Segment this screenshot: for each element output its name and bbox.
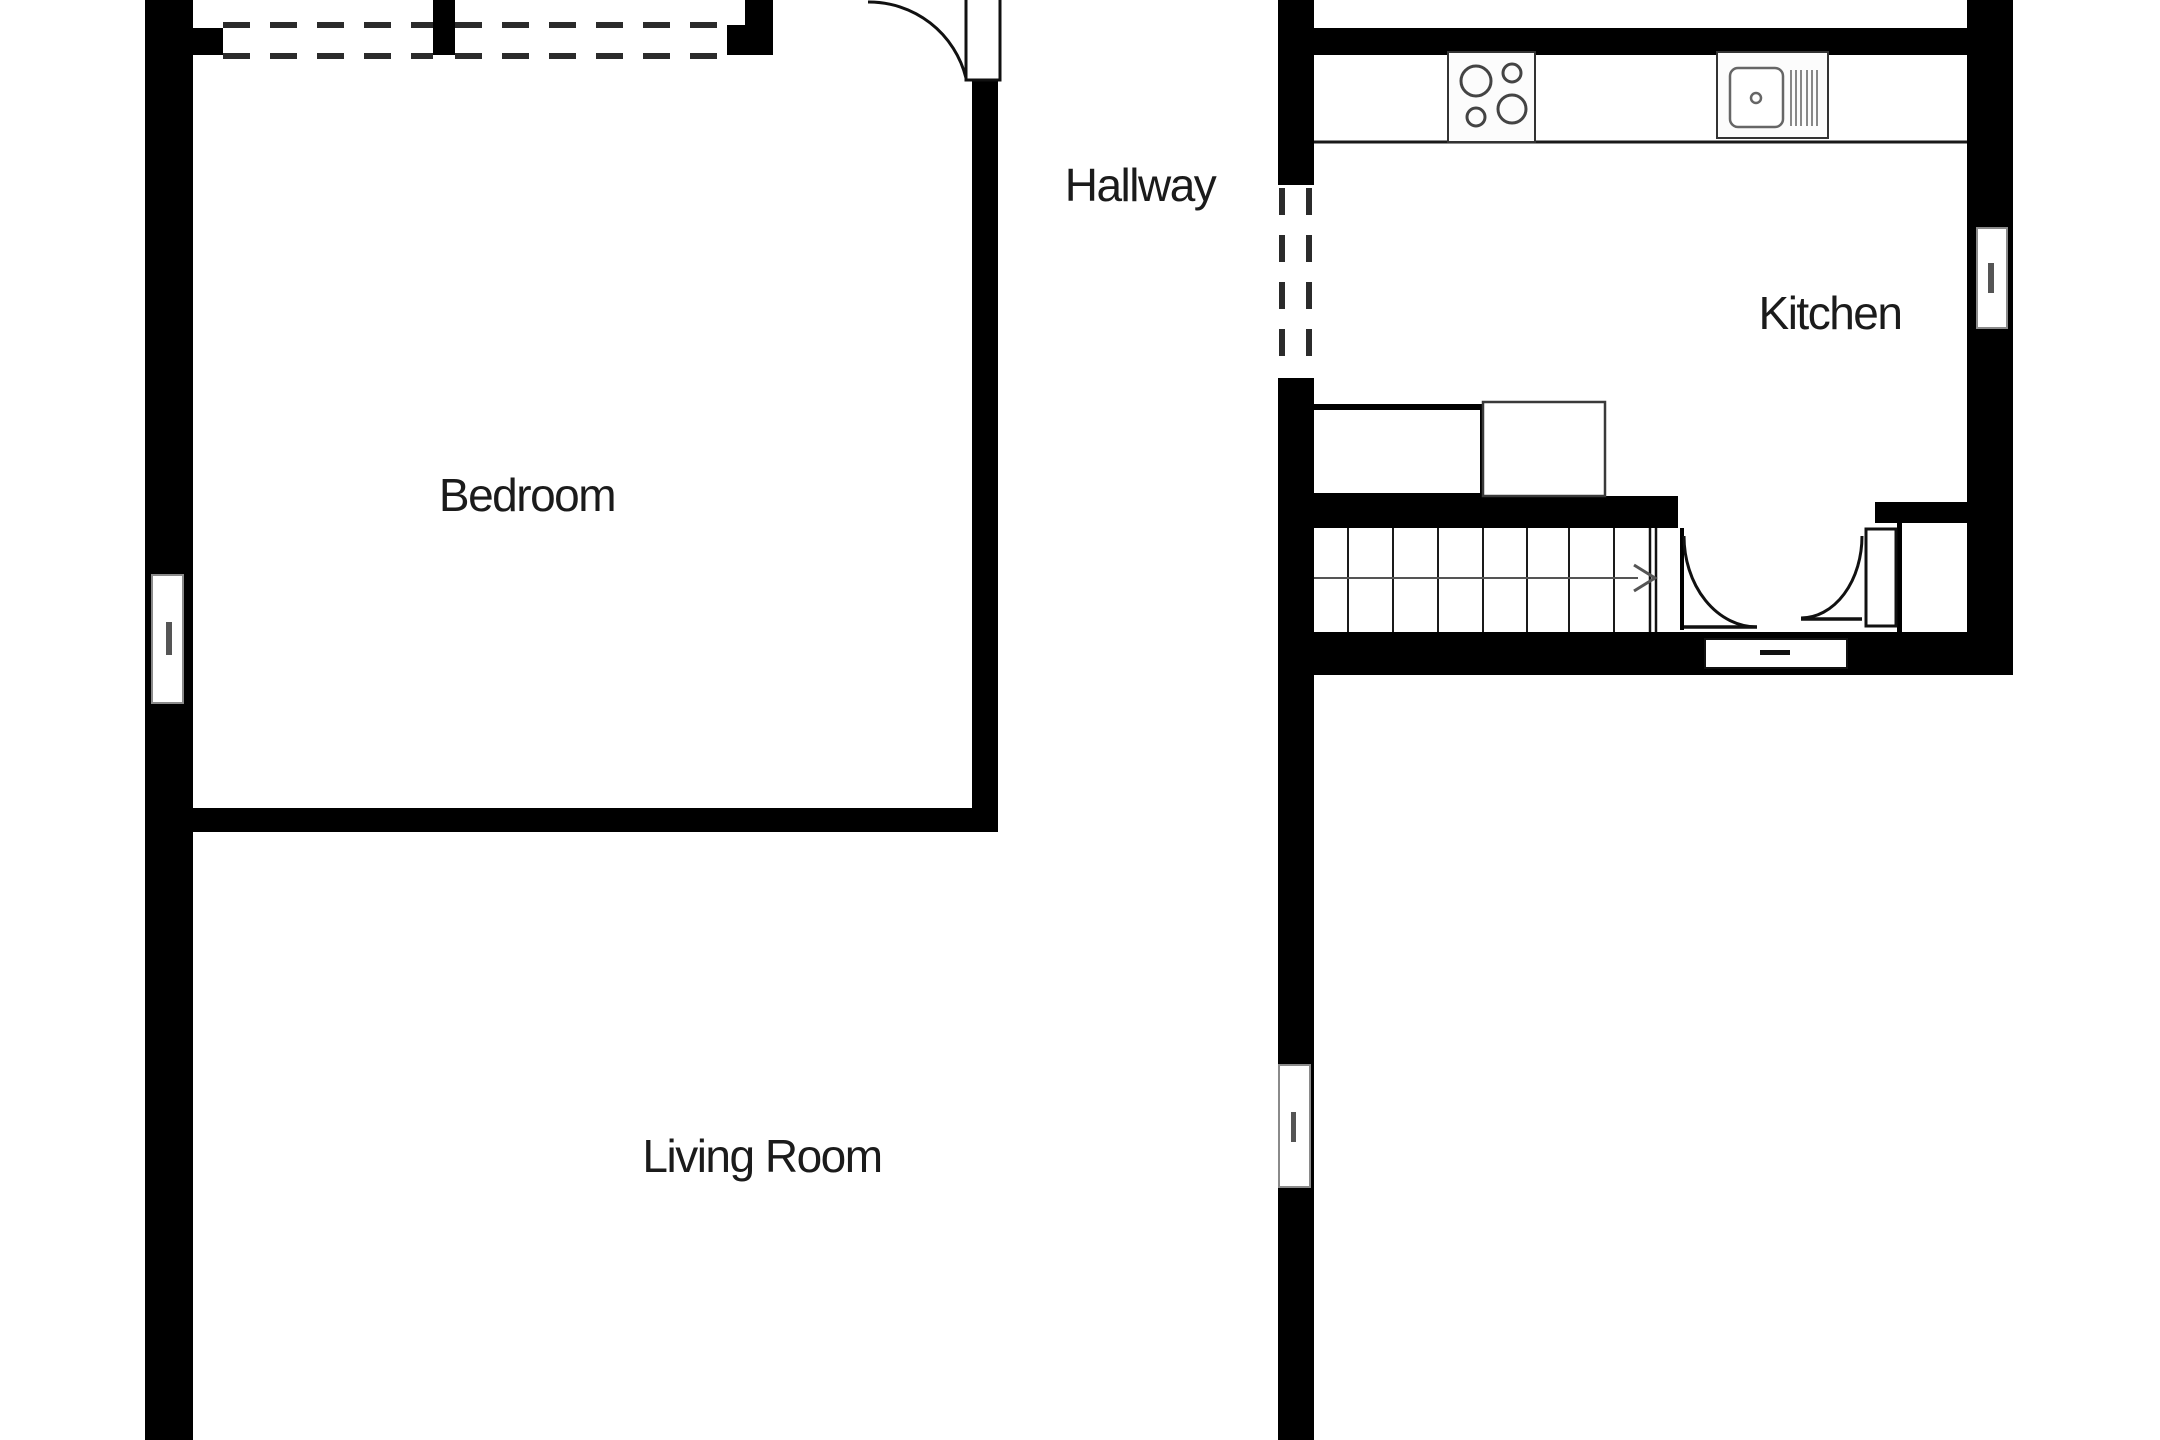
bedroom-right-wall xyxy=(972,72,998,832)
bedroom-bottom-wall xyxy=(145,808,997,832)
bedroom-label: Bedroom xyxy=(439,468,615,522)
stair-right-door-icon xyxy=(1801,529,1896,626)
stove-icon xyxy=(1448,52,1535,142)
left-exterior-wall xyxy=(145,0,193,1440)
walls xyxy=(145,0,2013,1440)
kitchen-appliance-unit xyxy=(1311,407,1483,496)
stair-upper-wall-band xyxy=(1278,496,1678,528)
bedroom-left-window-icon xyxy=(152,575,183,703)
door-niche-edge-line xyxy=(1897,523,1902,632)
living-room-label: Living Room xyxy=(642,1129,881,1183)
living-room-window-icon xyxy=(1279,1065,1310,1187)
kitchen-left-window-icon xyxy=(1282,188,1309,375)
stair-left-door-icon xyxy=(1684,536,1757,627)
sink-icon xyxy=(1717,52,1828,138)
threshold-opening xyxy=(1705,639,1847,668)
window-stub-left xyxy=(193,28,223,55)
stair-bottom-wall-band xyxy=(1278,632,2013,675)
staircase-icon xyxy=(1314,528,1656,632)
kitchen-counter-unit xyxy=(1483,402,1605,496)
window-corner-stub-foot xyxy=(727,25,773,55)
floorplan: Bedroom Hallway Kitchen Living Room xyxy=(0,0,2160,1440)
bedroom-top-window-icon xyxy=(223,25,727,56)
bedroom-door-icon xyxy=(868,0,1000,80)
window-mullion xyxy=(433,0,455,55)
kitchen-left-divider-wall xyxy=(1278,378,1314,1440)
floorplan-canvas xyxy=(0,0,2160,1440)
kitchen-left-wall-upper xyxy=(1278,0,1314,185)
kitchen-top-wall xyxy=(1278,28,2013,55)
kitchen-right-wall xyxy=(1967,0,2013,675)
kitchen-label: Kitchen xyxy=(1759,286,1902,340)
kitchen-right-window-icon xyxy=(1977,228,2007,328)
hallway-label: Hallway xyxy=(1065,158,1216,212)
door-niche-top-stub xyxy=(1875,502,1967,523)
